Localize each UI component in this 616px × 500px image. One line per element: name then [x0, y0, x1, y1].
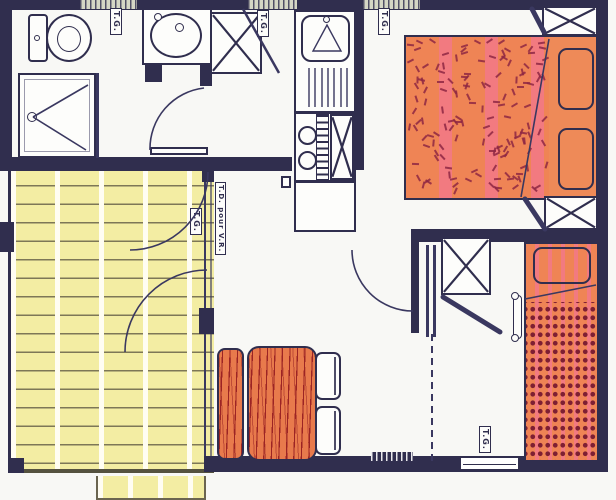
terrace-step — [96, 476, 206, 500]
single-bed-pillow — [533, 247, 591, 284]
wall-left — [0, 0, 12, 168]
sliding-door-rail-1 — [426, 245, 429, 337]
label-tg-bedroom1: T.G. — [378, 8, 390, 35]
toilet-flush-button — [34, 35, 40, 41]
terrace-door-frame — [199, 308, 214, 334]
label-tg-bathroom: T.G. — [110, 8, 122, 35]
kitchen-counter — [294, 181, 356, 232]
bedroom1-overhead-cabinet-bottom — [544, 196, 598, 230]
double-bed — [404, 35, 598, 200]
stove-burner-2 — [298, 151, 317, 170]
bathroom-door-arc — [150, 88, 204, 150]
vent-bottom — [371, 452, 413, 461]
terrace-deck — [8, 168, 214, 473]
water-heater-grille — [316, 114, 329, 180]
shower-door — [96, 73, 99, 158]
kitchen-side-tab — [281, 176, 291, 188]
label-tg-bedroom2: T.G. — [479, 426, 491, 453]
shower-drain — [27, 112, 37, 122]
dining-bench — [217, 348, 244, 460]
vent-window-hall — [248, 0, 297, 9]
single-bed-blanket — [526, 302, 597, 462]
wall-basin-stub — [145, 62, 162, 82]
grab-handle-end-bottom — [511, 334, 519, 342]
label-tg-terrace: T.G. — [190, 208, 202, 235]
washbasin-faucet — [154, 13, 162, 21]
double-bed-pillow-1 — [558, 48, 594, 110]
grab-handle-end-top — [511, 292, 519, 300]
bedroom1-overhead-cabinet-top — [542, 6, 598, 36]
bed1-confetti — [406, 37, 552, 198]
terrace-left-tab — [0, 222, 14, 252]
toilet-bowl-inner — [57, 26, 81, 52]
single-bed — [524, 242, 599, 462]
terrace-corner-post — [8, 458, 24, 473]
fridge — [330, 114, 354, 180]
vent-window-kitchen — [363, 0, 420, 9]
label-td-pour-vr: T.D. pour V.R. — [215, 182, 226, 255]
sliding-door-rail-2 — [433, 245, 436, 337]
bedroom2-door-leaf — [443, 297, 500, 332]
floor-plan: T.G. T.G. T.G. T.G. T.G. T.D. pour V.R. — [0, 0, 616, 500]
dining-chair-1 — [315, 352, 341, 400]
kitchen-faucet — [323, 16, 330, 23]
label-tg-hall: T.G. — [257, 10, 269, 37]
hall-wardrobe — [210, 12, 262, 74]
bedroom2-door-arc — [352, 250, 413, 311]
stove-burner-1 — [298, 126, 317, 145]
double-bed-pillow-2 — [558, 128, 594, 190]
vent-window-bathroom — [80, 0, 137, 9]
window-bottom — [459, 456, 520, 471]
bedroom2-wardrobe — [441, 237, 491, 295]
wall-bathroom-bottom — [0, 157, 292, 171]
washbasin-drain — [175, 23, 184, 32]
dining-chair-2 — [315, 406, 341, 455]
grab-handle — [513, 295, 522, 339]
bedroom1-door-leaf-bottom — [525, 199, 545, 229]
bathroom-door-leaf — [150, 147, 208, 155]
wall-bedroom2-left — [411, 229, 419, 333]
dining-table — [247, 346, 317, 461]
